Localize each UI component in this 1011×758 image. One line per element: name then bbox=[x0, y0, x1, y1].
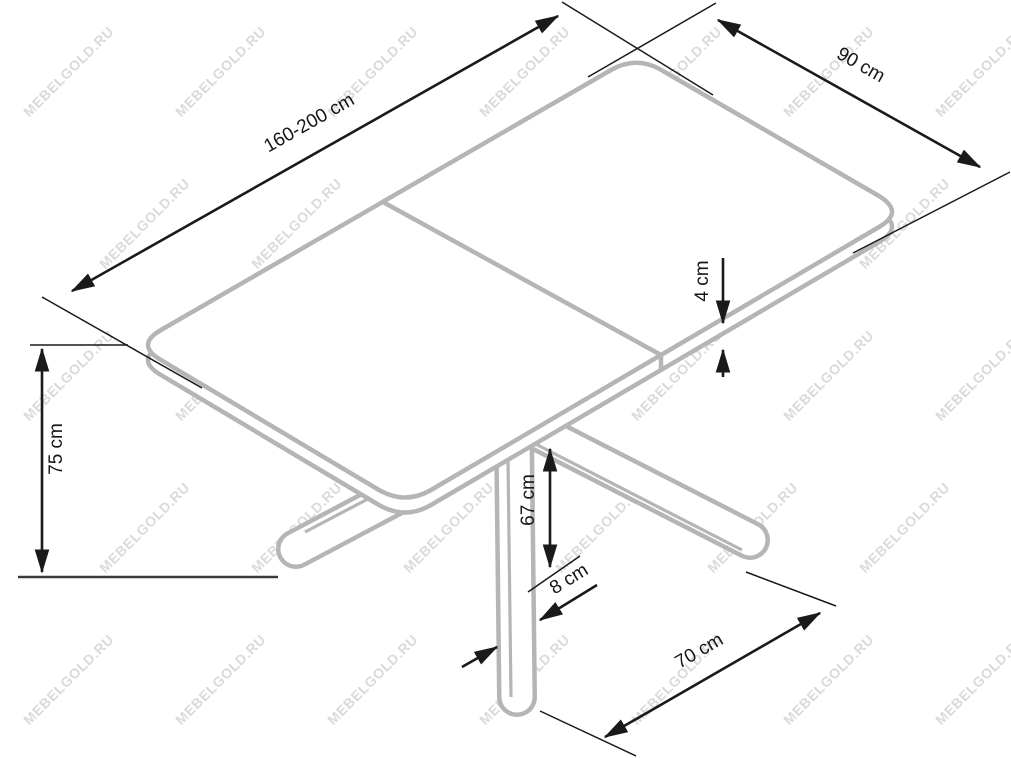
watermark-text: MEBELGOLD.RU bbox=[20, 23, 117, 120]
dimension-label-clearance: 67 cm bbox=[518, 474, 539, 526]
table-leg-front bbox=[514, 435, 517, 697]
watermark-text: MEBELGOLD.RU bbox=[20, 631, 117, 728]
watermark-text: MEBELGOLD.RU bbox=[932, 631, 1011, 728]
watermark-text: MEBELGOLD.RU bbox=[172, 631, 269, 728]
watermark-text: MEBELGOLD.RU bbox=[932, 327, 1011, 424]
leg-edge-line bbox=[520, 436, 742, 550]
table-leg-right bbox=[525, 425, 750, 540]
watermark-text: MEBELGOLD.RU bbox=[932, 23, 1011, 120]
dimension-base-spread: 70 cm bbox=[540, 572, 836, 756]
watermark-text: MEBELGOLD.RU bbox=[324, 631, 421, 728]
watermark-text: MEBELGOLD.RU bbox=[780, 327, 877, 424]
watermark-text: MEBELGOLD.RU bbox=[172, 23, 269, 120]
watermark-text: MEBELGOLD.RU bbox=[96, 479, 193, 576]
table-dimension-drawing: MEBELGOLD.RUMEBELGOLD.RUMEBELGOLD.RUMEBE… bbox=[0, 0, 1011, 758]
watermark-text: MEBELGOLD.RU bbox=[856, 479, 953, 576]
watermark-text: MEBELGOLD.RU bbox=[20, 327, 117, 424]
table-drawing bbox=[148, 63, 892, 697]
dimension-label-thickness: 4 cm bbox=[692, 260, 713, 301]
diagram-canvas: MEBELGOLD.RUMEBELGOLD.RUMEBELGOLD.RUMEBE… bbox=[0, 0, 1011, 758]
watermark-text: MEBELGOLD.RU bbox=[780, 631, 877, 728]
dimension-label-length: 160-200 cm bbox=[260, 89, 358, 157]
dimension-label-height: 75 cm bbox=[46, 423, 67, 475]
watermark-text: MEBELGOLD.RU bbox=[96, 175, 193, 272]
